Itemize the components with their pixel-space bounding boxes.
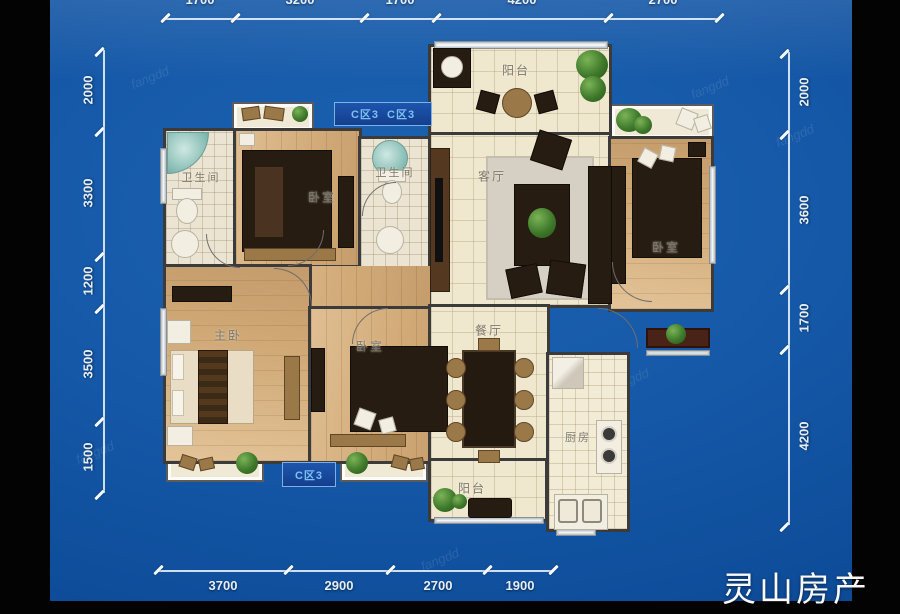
potted-plant [292, 106, 308, 122]
dining-chair [478, 338, 500, 351]
dresser [172, 286, 232, 302]
dim-left-5: 1500 [81, 443, 96, 472]
window-entry [646, 350, 710, 356]
potted-plant [346, 452, 368, 474]
dim-left-4: 3500 [81, 350, 96, 379]
window-bathroom-left [160, 148, 167, 204]
dining-table [462, 350, 516, 448]
label-living-room: 客厅 [478, 168, 506, 185]
potted-plant [666, 324, 686, 344]
nightstand [167, 426, 193, 446]
potted-plant [634, 116, 652, 134]
potted-plant [580, 76, 606, 102]
tv [435, 178, 443, 262]
dim-left-1: 2000 [81, 76, 96, 105]
unit-marker-label: C区3 [387, 106, 415, 122]
potted-plant [236, 452, 258, 474]
dim-bottom-2: 2900 [325, 578, 354, 593]
label-kitchen: 厨房 [565, 429, 591, 445]
dim-left-3: 1200 [81, 267, 96, 296]
window-master [160, 308, 167, 376]
label-master-bedroom: 主卧 [214, 327, 242, 344]
sink-basin [558, 499, 578, 523]
dim-bottom-1: 3700 [209, 578, 238, 593]
bed-runner [254, 166, 284, 238]
dim-bottom-4: 1900 [506, 578, 535, 593]
burner [601, 448, 617, 464]
dim-right-1: 2000 [797, 78, 812, 107]
dim-top-3: 1700 [386, 0, 415, 7]
bed-runner [198, 350, 228, 424]
wardrobe [338, 176, 354, 248]
dim-top-1: 1700 [186, 0, 215, 7]
washing-machine-drum [441, 56, 463, 78]
pillow [172, 390, 184, 416]
pillow [172, 354, 184, 380]
sofa [588, 166, 612, 304]
dim-left-2: 3300 [81, 179, 96, 208]
nightstand [688, 142, 706, 157]
dim-top-2: 3200 [286, 0, 315, 7]
label-bedroom-top-left: 卧室 [308, 189, 336, 206]
balcony-table [502, 88, 532, 118]
unit-marker-label: C区3 [351, 106, 379, 122]
label-bedroom-middle: 卧室 [356, 338, 384, 355]
dimension-line-right [788, 52, 790, 525]
label-balcony-bottom: 阳台 [458, 480, 486, 497]
bay-decor [409, 457, 425, 471]
tv-bench [284, 356, 300, 420]
dining-chair [446, 422, 466, 442]
unit-marker-bottom: C区3 [282, 462, 336, 487]
nightstand [167, 320, 191, 344]
label-bathroom-left: 卫生间 [182, 169, 221, 185]
label-dining-room: 餐厅 [475, 322, 503, 339]
crop-strip-right [852, 0, 900, 614]
balcony-furniture [468, 498, 512, 518]
floor-plan-screenshot: fangdd fangdd fangdd fangdd fangdd fangd… [0, 0, 900, 614]
dim-top-5: 2700 [649, 0, 678, 7]
unit-marker-top: C区3 C区3 [334, 102, 432, 126]
pillow [659, 145, 677, 163]
dimension-line-bottom [158, 570, 554, 572]
dining-chair [478, 450, 500, 463]
window-bedroom-right [709, 166, 716, 264]
window-kitchen [556, 529, 596, 536]
table-plant [528, 208, 556, 238]
armchair [546, 260, 586, 299]
sink-basin [582, 499, 602, 523]
dim-right-4: 4200 [797, 422, 812, 451]
dresser [330, 434, 406, 447]
burner [601, 426, 617, 442]
dim-bottom-3: 2700 [424, 578, 453, 593]
dining-chair [446, 358, 466, 378]
bathroom-sink [171, 230, 199, 258]
label-balcony-top: 阳台 [502, 62, 530, 79]
window-balcony-bottom [434, 517, 544, 524]
dim-right-2: 3600 [797, 196, 812, 225]
site-watermark: 灵山房产网 [722, 562, 900, 614]
unit-marker-label: C区3 [295, 467, 323, 483]
nightstand [239, 133, 255, 146]
dining-chair [446, 390, 466, 410]
crop-strip-left [0, 0, 50, 614]
dimension-line-left [103, 50, 105, 493]
label-bedroom-right: 卧室 [652, 239, 680, 256]
label-bathroom-mid: 卫生间 [376, 164, 415, 180]
fridge [552, 357, 584, 389]
dimension-line-top [165, 18, 719, 20]
dining-chair [514, 358, 534, 378]
dining-chair [514, 390, 534, 410]
dim-right-3: 1700 [797, 304, 812, 333]
toilet-bowl [176, 198, 198, 224]
dim-top-4: 4200 [508, 0, 537, 7]
bay-decor [241, 106, 261, 121]
bathroom-sink [376, 226, 404, 254]
wardrobe [311, 348, 325, 412]
bay-decor [263, 106, 285, 122]
dining-chair [514, 422, 534, 442]
